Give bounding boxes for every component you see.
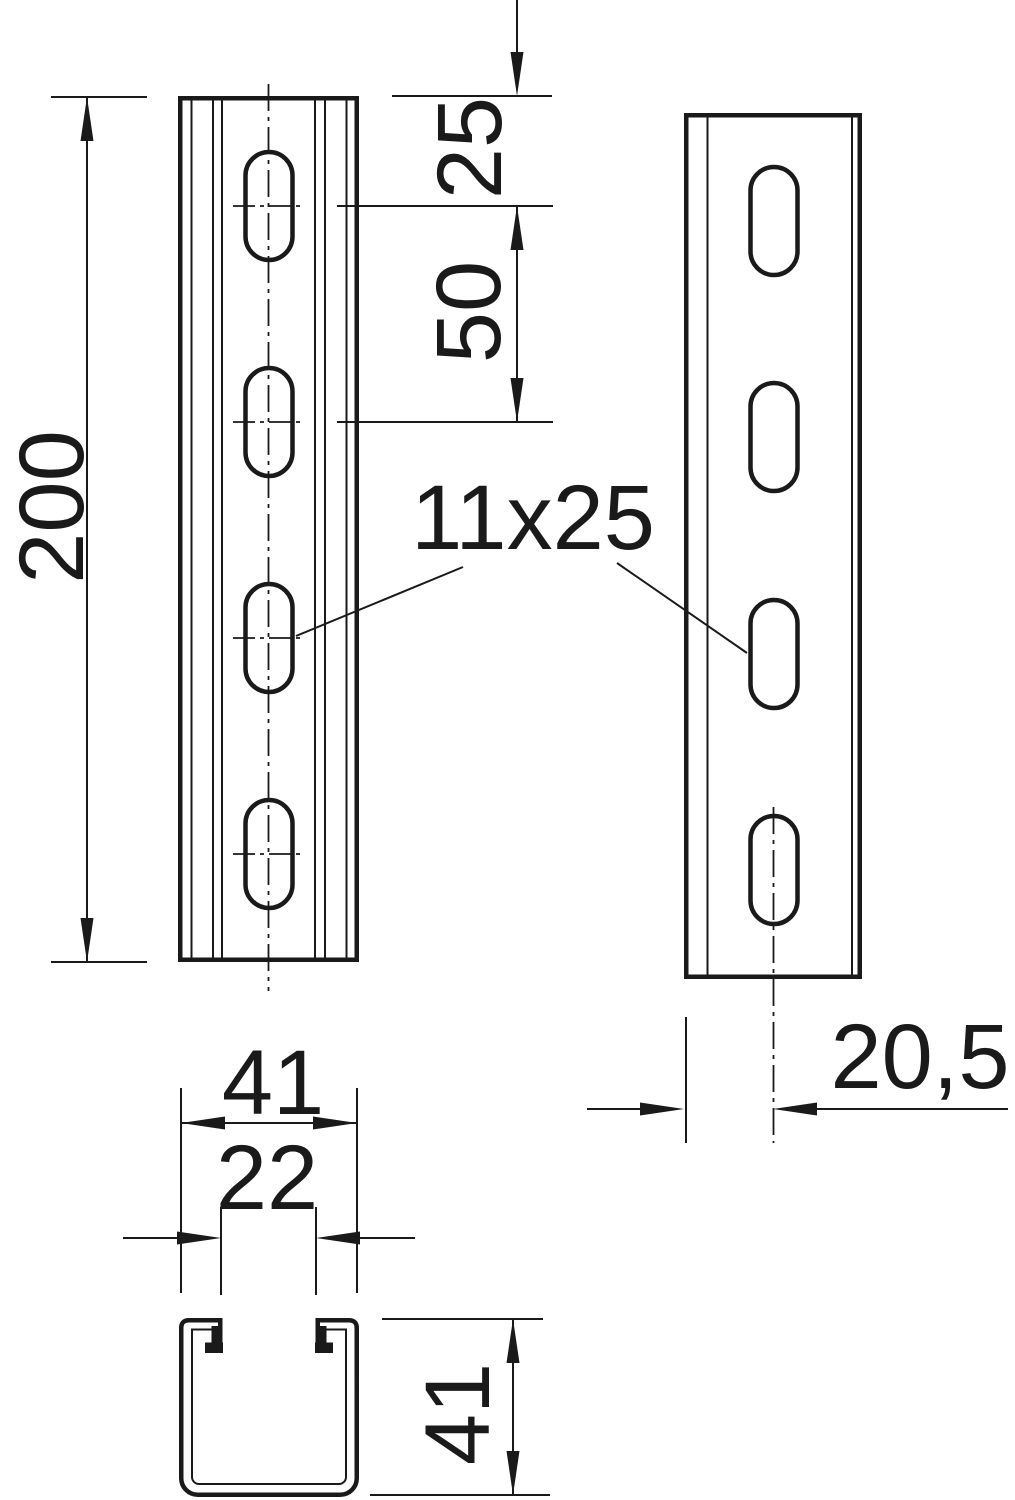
slot-hole [751,600,798,708]
dim-41-height: 41 [370,1319,550,1495]
dim-200-label: 200 [1,430,103,584]
slot-hole [751,167,798,275]
dim-41-width-label: 41 [222,1032,324,1134]
dim-20-5-label: 20,5 [830,1006,1009,1108]
dim-25-50: 25 50 [337,0,553,422]
arrowhead-left [316,1232,360,1245]
arrowhead-right [640,1103,684,1116]
dim-22-label: 22 [216,1127,318,1229]
arrowhead-up [511,206,524,250]
dim-50-label: 50 [418,261,520,363]
section-lip-foot [315,1343,333,1354]
technical-drawing-sheet: 200 25 50 11x25 41 22 [0,0,1015,1500]
section-lip [316,1326,327,1344]
section-lip [212,1326,223,1344]
slot-hole [751,383,798,491]
arrowhead-up [81,97,94,141]
arrowhead-left [773,1103,817,1116]
cross-section-view [181,1320,357,1495]
arrowhead-down [81,918,94,962]
leader-line [617,563,747,653]
dim-25-label: 25 [419,97,521,199]
label-slot-size: 11x25 [296,467,747,653]
profile-rail-drawing: 200 25 50 11x25 41 22 [0,0,1015,1500]
arrowhead-down [511,52,524,96]
section-lip-foot [205,1343,223,1354]
arrowhead-right [177,1232,221,1245]
arrowhead-down [511,378,524,422]
dim-20-5: 20,5 [587,1006,1010,1143]
front-view [180,84,357,991]
dim-41-height-label: 41 [407,1363,509,1465]
side-view-outline [686,115,860,977]
slot-size-label: 11x25 [411,467,655,569]
leader-line [296,567,463,636]
dim-200: 200 [1,97,147,962]
arrowhead-up [507,1319,520,1363]
dim-22: 22 [123,1127,415,1295]
